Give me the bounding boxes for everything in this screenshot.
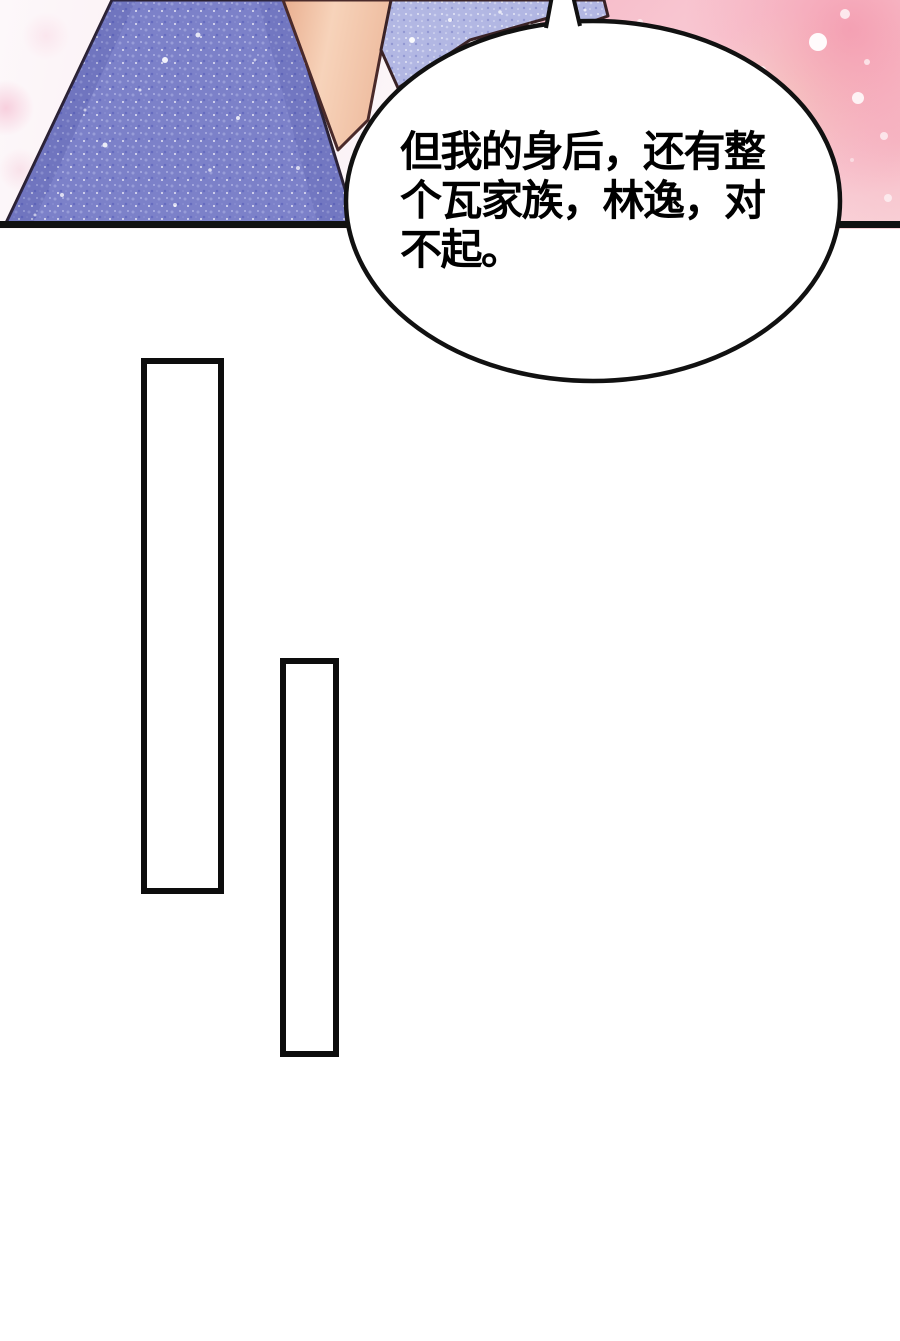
comic-page: 但我的身后，还有整 个瓦家族，林逸，对 不起。 (0, 0, 900, 1341)
panel-bar-tall (141, 358, 224, 894)
speech-bubble-text: 但我的身后，还有整 个瓦家族，林逸，对 不起。 (400, 127, 790, 274)
panel-bar-short (280, 658, 339, 1057)
